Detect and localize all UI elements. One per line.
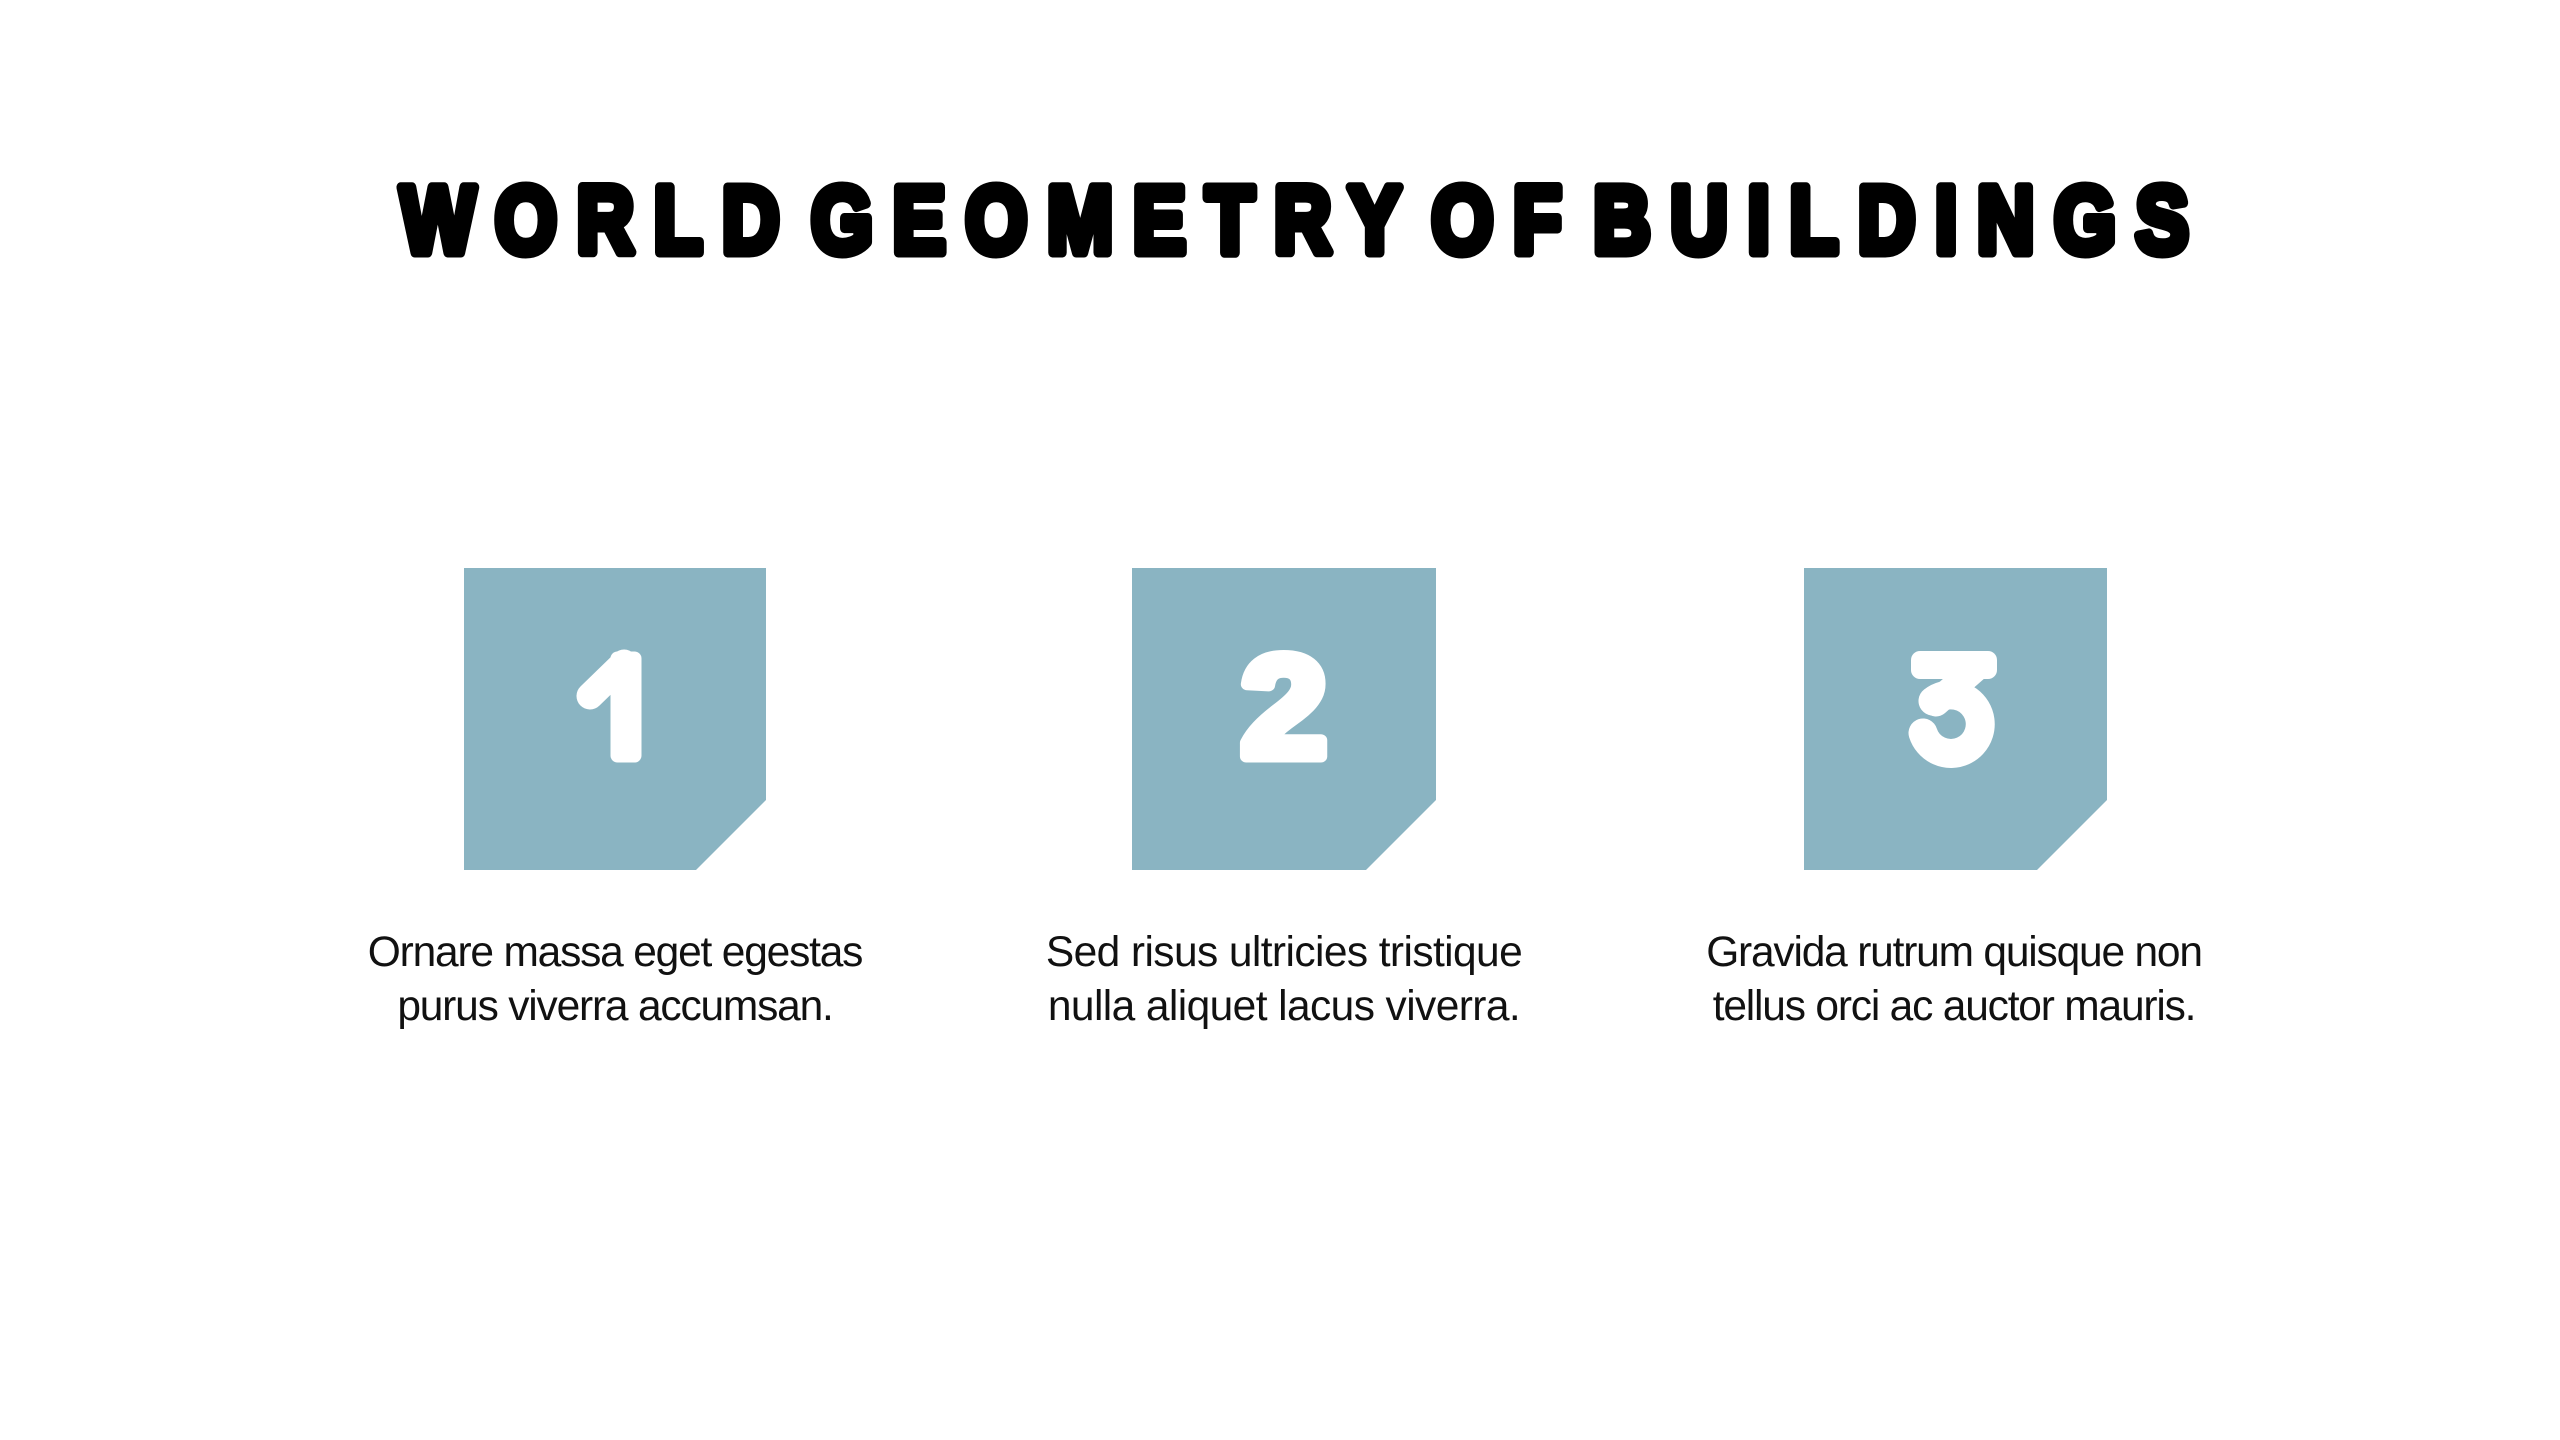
svg-text:WORLD GEOMETRY OF BUILDINGS: WORLD GEOMETRY OF BUILDINGS [401, 168, 2209, 274]
svg-text:2: 2 [1241, 627, 1327, 788]
